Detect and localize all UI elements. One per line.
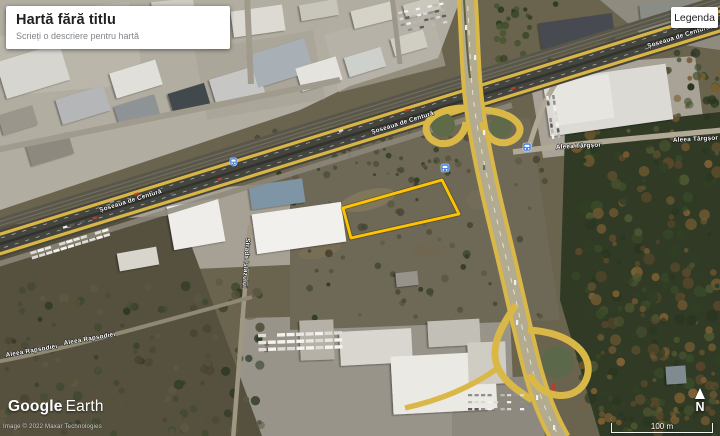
google-earth-logo: GoogleEarth (8, 398, 104, 416)
map-title-card[interactable]: Hartă fără titlu Scrieți o descriere pen… (6, 6, 230, 49)
map-subtitle: Scrieți o descriere pentru hartă (16, 31, 220, 41)
logo-earth-text: Earth (66, 398, 104, 415)
map-title: Hartă fără titlu (16, 12, 220, 28)
north-label: N (690, 400, 710, 414)
bus-stop-icon[interactable] (523, 143, 531, 151)
satellite-map[interactable]: Șoseaua de CenturăȘoseaua de CenturăȘose… (0, 0, 720, 436)
compass-north[interactable]: N (690, 388, 710, 414)
bus-stop-icon[interactable] (441, 164, 449, 172)
bus-stop-icon[interactable] (230, 158, 237, 165)
scale-bar: 100 m (611, 423, 713, 433)
imagery-attribution: Image © 2022 Maxar Technologies (3, 424, 102, 430)
scale-bar-label: 100 m (612, 423, 712, 431)
north-arrow-icon (695, 388, 705, 399)
logo-google-text: Google (8, 398, 63, 415)
legend-button[interactable]: Legenda (671, 7, 718, 28)
app-window: Șoseaua de CenturăȘoseaua de CenturăȘose… (0, 0, 720, 436)
